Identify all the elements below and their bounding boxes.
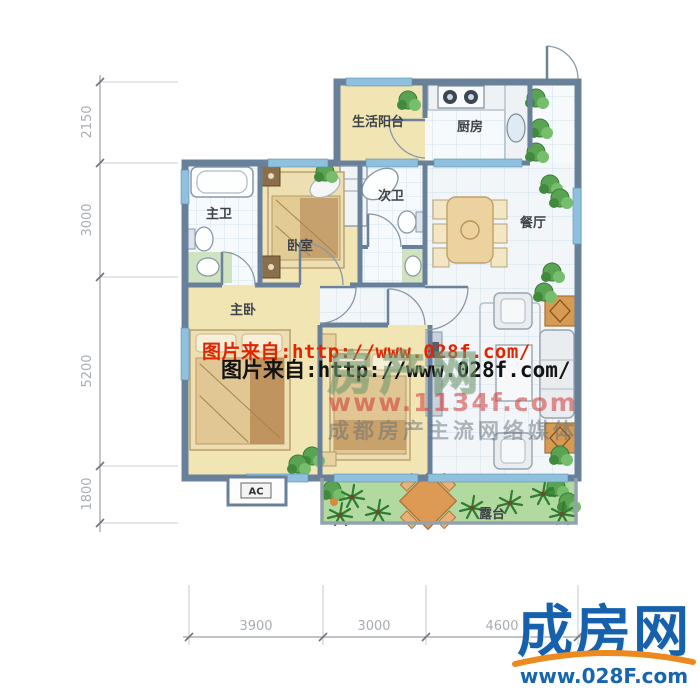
site-logo: 成房网 www.028F.com <box>508 604 700 688</box>
bathtub <box>191 167 253 197</box>
window <box>346 78 412 86</box>
room-label-terrace: 露台 <box>479 506 505 522</box>
window <box>334 474 418 482</box>
sliding-door <box>428 474 568 482</box>
window <box>366 159 418 167</box>
room-label-master-bedroom: 主卧 <box>230 302 256 318</box>
dim-left-3000: 3000 <box>80 203 95 236</box>
window <box>181 170 189 204</box>
watermark-black-text: 图片来自:http://www.028f.com/ <box>221 354 571 384</box>
toilet <box>187 227 213 251</box>
dining-set <box>433 197 507 267</box>
window <box>573 188 581 244</box>
entry-door-arc <box>547 46 578 79</box>
washbasin-2 <box>405 256 421 276</box>
plant-icon <box>330 498 338 506</box>
room-label-kitchen: 厨房 <box>457 119 483 135</box>
dim-bottom-3900: 3900 <box>239 619 272 634</box>
kitchen-sink <box>505 84 528 162</box>
washbasin <box>197 258 219 276</box>
window <box>181 328 189 380</box>
room-label-second-bath: 次卫 <box>378 188 404 204</box>
ac-platform: AC <box>228 477 286 505</box>
dim-left-1800: 1800 <box>80 477 95 510</box>
site-logo-url: www.028F.com <box>508 664 700 688</box>
ac-label: AC <box>248 487 263 498</box>
window <box>434 159 522 167</box>
dim-left-2150: 2150 <box>80 105 95 138</box>
dim-bottom-3000: 3000 <box>357 619 390 634</box>
room-label-bedroom: 卧室 <box>287 238 313 254</box>
window <box>268 159 328 167</box>
toilet-2 <box>398 211 424 233</box>
dim-left-5200: 5200 <box>80 354 95 387</box>
room-label-dining: 餐厅 <box>519 215 546 231</box>
room-label-balcony: 生活阳台 <box>352 114 404 130</box>
floorplan-page: AC 生活阳台 厨房 主卫 卧室 次卫 餐厅 主卧 露台 2150 3000 5… <box>0 0 700 700</box>
room-label-master-bath: 主卫 <box>206 206 232 222</box>
